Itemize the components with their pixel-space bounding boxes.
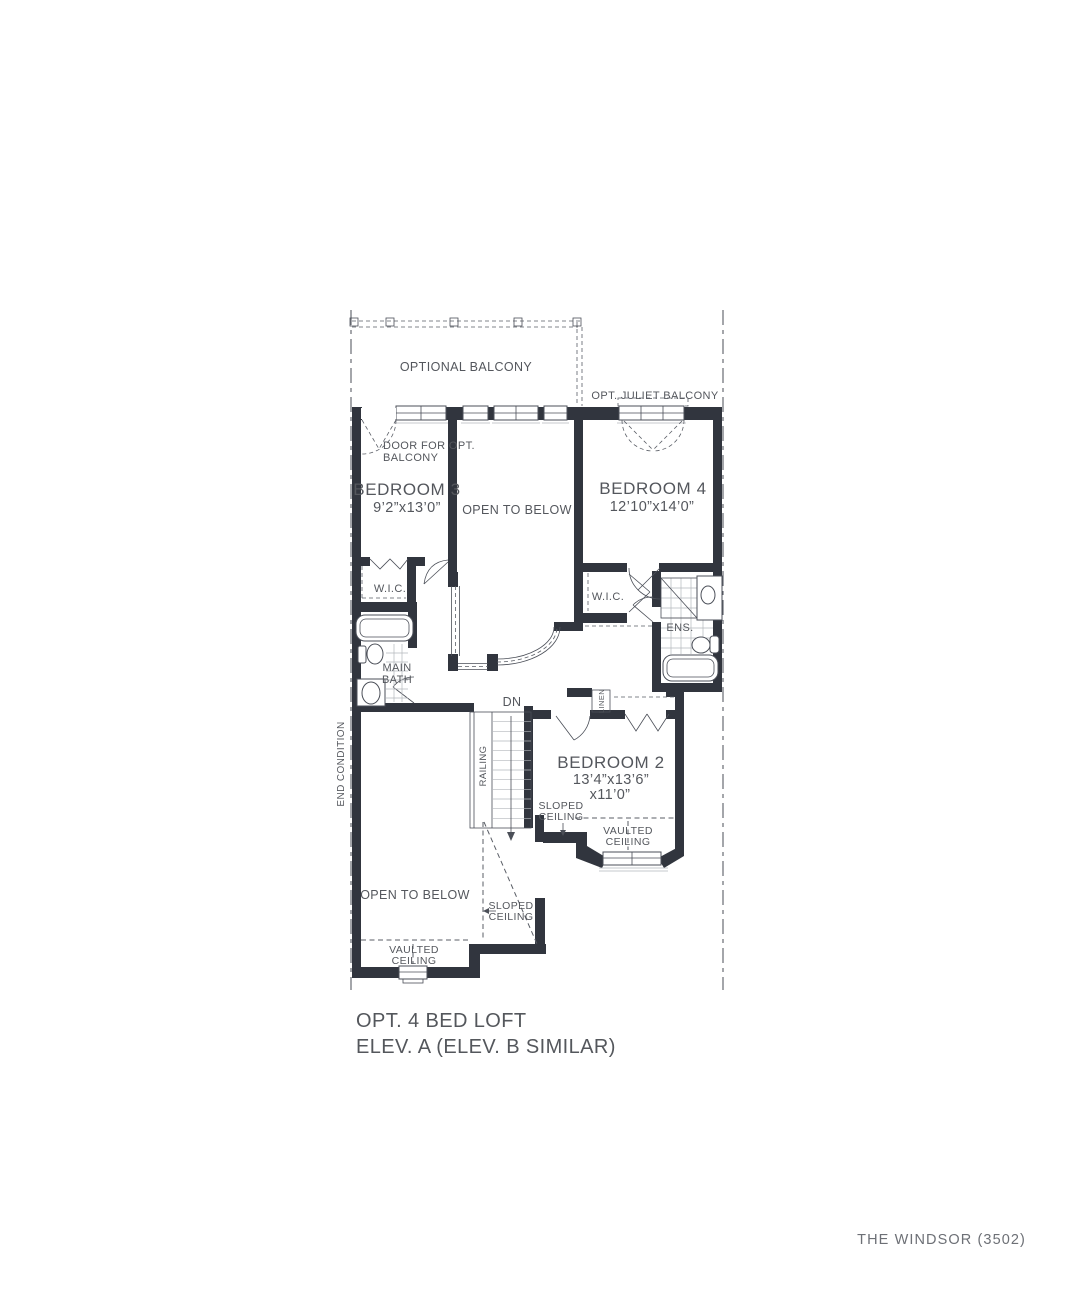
window-juliet-door	[617, 406, 686, 423]
fixtures-main-bath	[356, 615, 413, 706]
sloped-ceiling-note-loft: SLOPED CEILING	[483, 900, 534, 923]
window-bedroom3	[394, 406, 448, 423]
window-lower-vaulted	[399, 966, 427, 983]
plan-title: OPT. 4 BED LOFT ELEV. A (ELEV. B SIMILAR…	[356, 1010, 616, 1058]
bedroom2-dims-1: 13’4”x13’6”	[573, 772, 649, 788]
svg-text:CEILING: CEILING	[539, 811, 584, 823]
bedroom2-closet-doors	[625, 714, 669, 731]
optional-balcony: OPTIONAL BALCONY	[350, 318, 582, 406]
bedroom3-name: BEDROOM 3	[353, 480, 460, 499]
juliet-doors	[622, 420, 684, 451]
optional-balcony-label: OPTIONAL BALCONY	[400, 360, 533, 374]
plan-title-line2: ELEV. A (ELEV. B SIMILAR)	[356, 1036, 616, 1058]
dn-label: DN	[503, 695, 522, 709]
railings	[452, 586, 561, 670]
juliet-balcony-label: OPT. JULIET BALCONY	[591, 390, 718, 402]
linen-label: LINEN	[597, 689, 606, 713]
window-bedroom2-bay	[599, 852, 668, 871]
door-opt-balcony-note: DOOR FOR OPT. BALCONY	[383, 440, 475, 464]
wic-left-bifold-doors	[370, 559, 408, 569]
railing-label: RAILING	[478, 746, 489, 787]
balcony-posts	[350, 318, 581, 326]
bedroom4-name: BEDROOM 4	[599, 479, 706, 498]
open-to-below-lower-label: OPEN TO BELOW	[360, 888, 470, 902]
end-condition-label: END CONDITION	[336, 721, 347, 806]
window-open-below-1	[461, 406, 490, 423]
stairs: DN RAILING	[470, 695, 531, 841]
sloped-ceiling-note-bedroom2: SLOPED CEILING	[539, 800, 584, 836]
bedroom3-door	[424, 560, 448, 584]
svg-text:CEILING: CEILING	[489, 911, 534, 923]
svg-text:BATH: BATH	[382, 674, 412, 686]
window-open-below-2	[492, 406, 540, 423]
vaulted-ceiling-note-loft: VAULTED CEILING	[389, 944, 439, 967]
svg-text:DOOR FOR OPT.: DOOR FOR OPT.	[383, 440, 475, 452]
vaulted-ceiling-note-bedroom2: VAULTED CEILING	[603, 825, 653, 848]
plan-title-line1: OPT. 4 BED LOFT	[356, 1010, 526, 1032]
curved-railing	[497, 627, 560, 665]
ensuite-tub-icon	[663, 655, 718, 681]
wic-left-label: W.I.C.	[374, 583, 406, 595]
floor-plan-canvas: END CONDITION OPTIONAL BALCONY OPT. JULI…	[0, 0, 1066, 1296]
linen-closet: LINEN	[592, 689, 674, 713]
svg-text:BALCONY: BALCONY	[383, 452, 439, 464]
bedroom4-dims: 12’10”x14’0”	[610, 499, 695, 515]
model-name-footer: THE WINDSOR (3502)	[857, 1232, 1026, 1248]
ceiling-annotations: SLOPED CEILING VAULTED CEILING SLOPED CE…	[361, 800, 675, 967]
ensuite-label: ENS.	[666, 622, 693, 634]
bedroom2-dims-2: x11’0”	[590, 787, 631, 803]
sink-vanity-icon	[357, 679, 385, 706]
ensuite-toilet-icon	[692, 636, 719, 653]
wic-right-label: W.I.C.	[592, 591, 624, 603]
open-to-below-center-label: OPEN TO BELOW	[462, 503, 572, 517]
ensuite-sink-icon	[697, 576, 722, 620]
juliet-balcony: OPT. JULIET BALCONY	[591, 390, 718, 406]
svg-text:MAIN: MAIN	[382, 662, 411, 674]
window-open-below-3	[542, 406, 569, 423]
bedroom3-dims: 9’2”x13’0”	[373, 500, 441, 516]
toilet-icon	[358, 644, 383, 664]
svg-text:CEILING: CEILING	[606, 836, 651, 848]
svg-text:CEILING: CEILING	[392, 955, 437, 967]
bedroom2-door	[556, 716, 590, 740]
main-bath-label: MAIN BATH	[382, 662, 412, 686]
wic-right-doors	[629, 574, 650, 612]
bathtub-icon	[356, 615, 413, 641]
bedroom2-name: BEDROOM 2	[557, 753, 664, 772]
